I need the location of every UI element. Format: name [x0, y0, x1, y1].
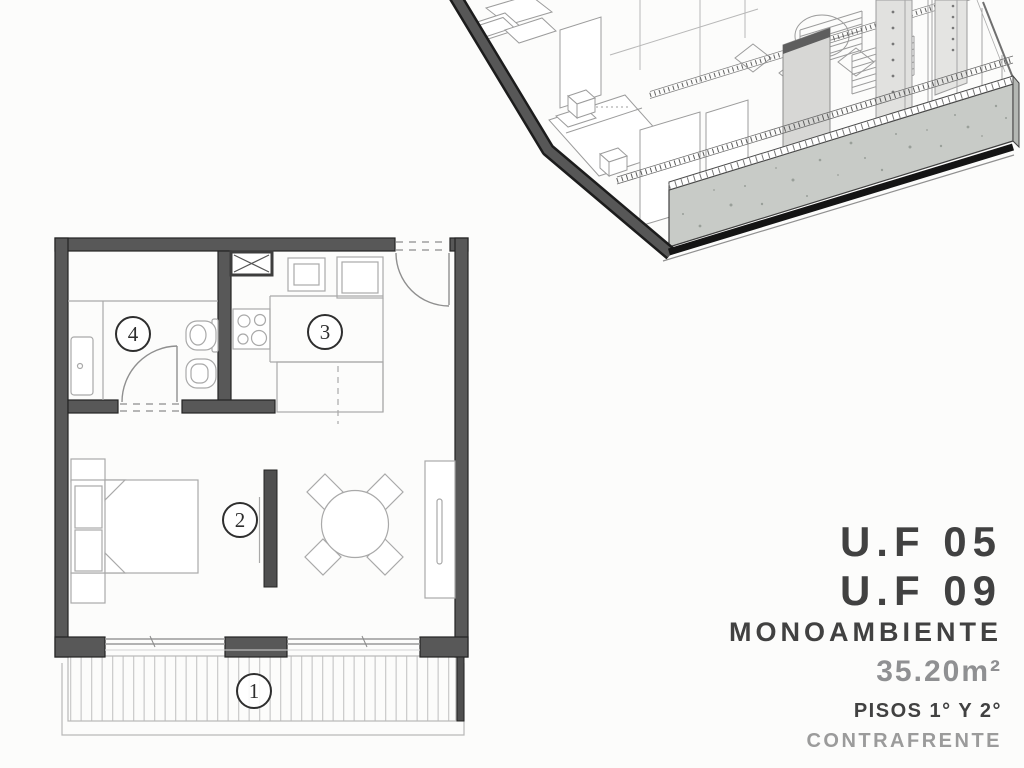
room-divider [264, 470, 277, 587]
room-badge-3: 3 [307, 314, 343, 350]
room-badge-2: 2 [222, 502, 258, 538]
architectural-drawing [0, 0, 1024, 768]
kitchen-fixtures [233, 257, 383, 424]
wardrobe [425, 461, 455, 598]
apartment-area: 35.20m² [876, 655, 1002, 689]
shaft-closet [231, 252, 272, 275]
nightstand [71, 459, 105, 482]
pillow [75, 486, 102, 528]
floor-plan [55, 238, 468, 735]
bathroom-fixtures [68, 301, 218, 400]
room-badge-1: 1 [236, 673, 272, 709]
room-number: 4 [128, 322, 139, 347]
apartment-type: MONOAMBIENTE [729, 617, 1002, 648]
doors [120, 242, 449, 411]
presentation-sheet: 1 2 3 4 U.F 05 U.F 09 MONOAMBIENTE 35.20… [0, 0, 1024, 768]
kitchen-appliance [337, 257, 383, 298]
unit-label-a: U.F 05 [840, 518, 1002, 566]
nightstand [71, 573, 105, 603]
entry-door [396, 253, 449, 306]
bathroom-door [122, 346, 177, 402]
dining-table [322, 491, 389, 558]
unit-label-b: U.F 09 [840, 567, 1002, 615]
pillow [75, 530, 102, 571]
axonometric-view [455, 0, 1019, 261]
room-number: 1 [249, 679, 260, 704]
room-number: 2 [235, 508, 246, 533]
room-number: 3 [320, 320, 331, 345]
orientation-label: CONTRAFRENTE [806, 730, 1002, 753]
room-badge-4: 4 [115, 316, 151, 352]
floors-label: PISOS 1° Y 2° [854, 700, 1002, 723]
main-room-furniture [71, 459, 455, 603]
